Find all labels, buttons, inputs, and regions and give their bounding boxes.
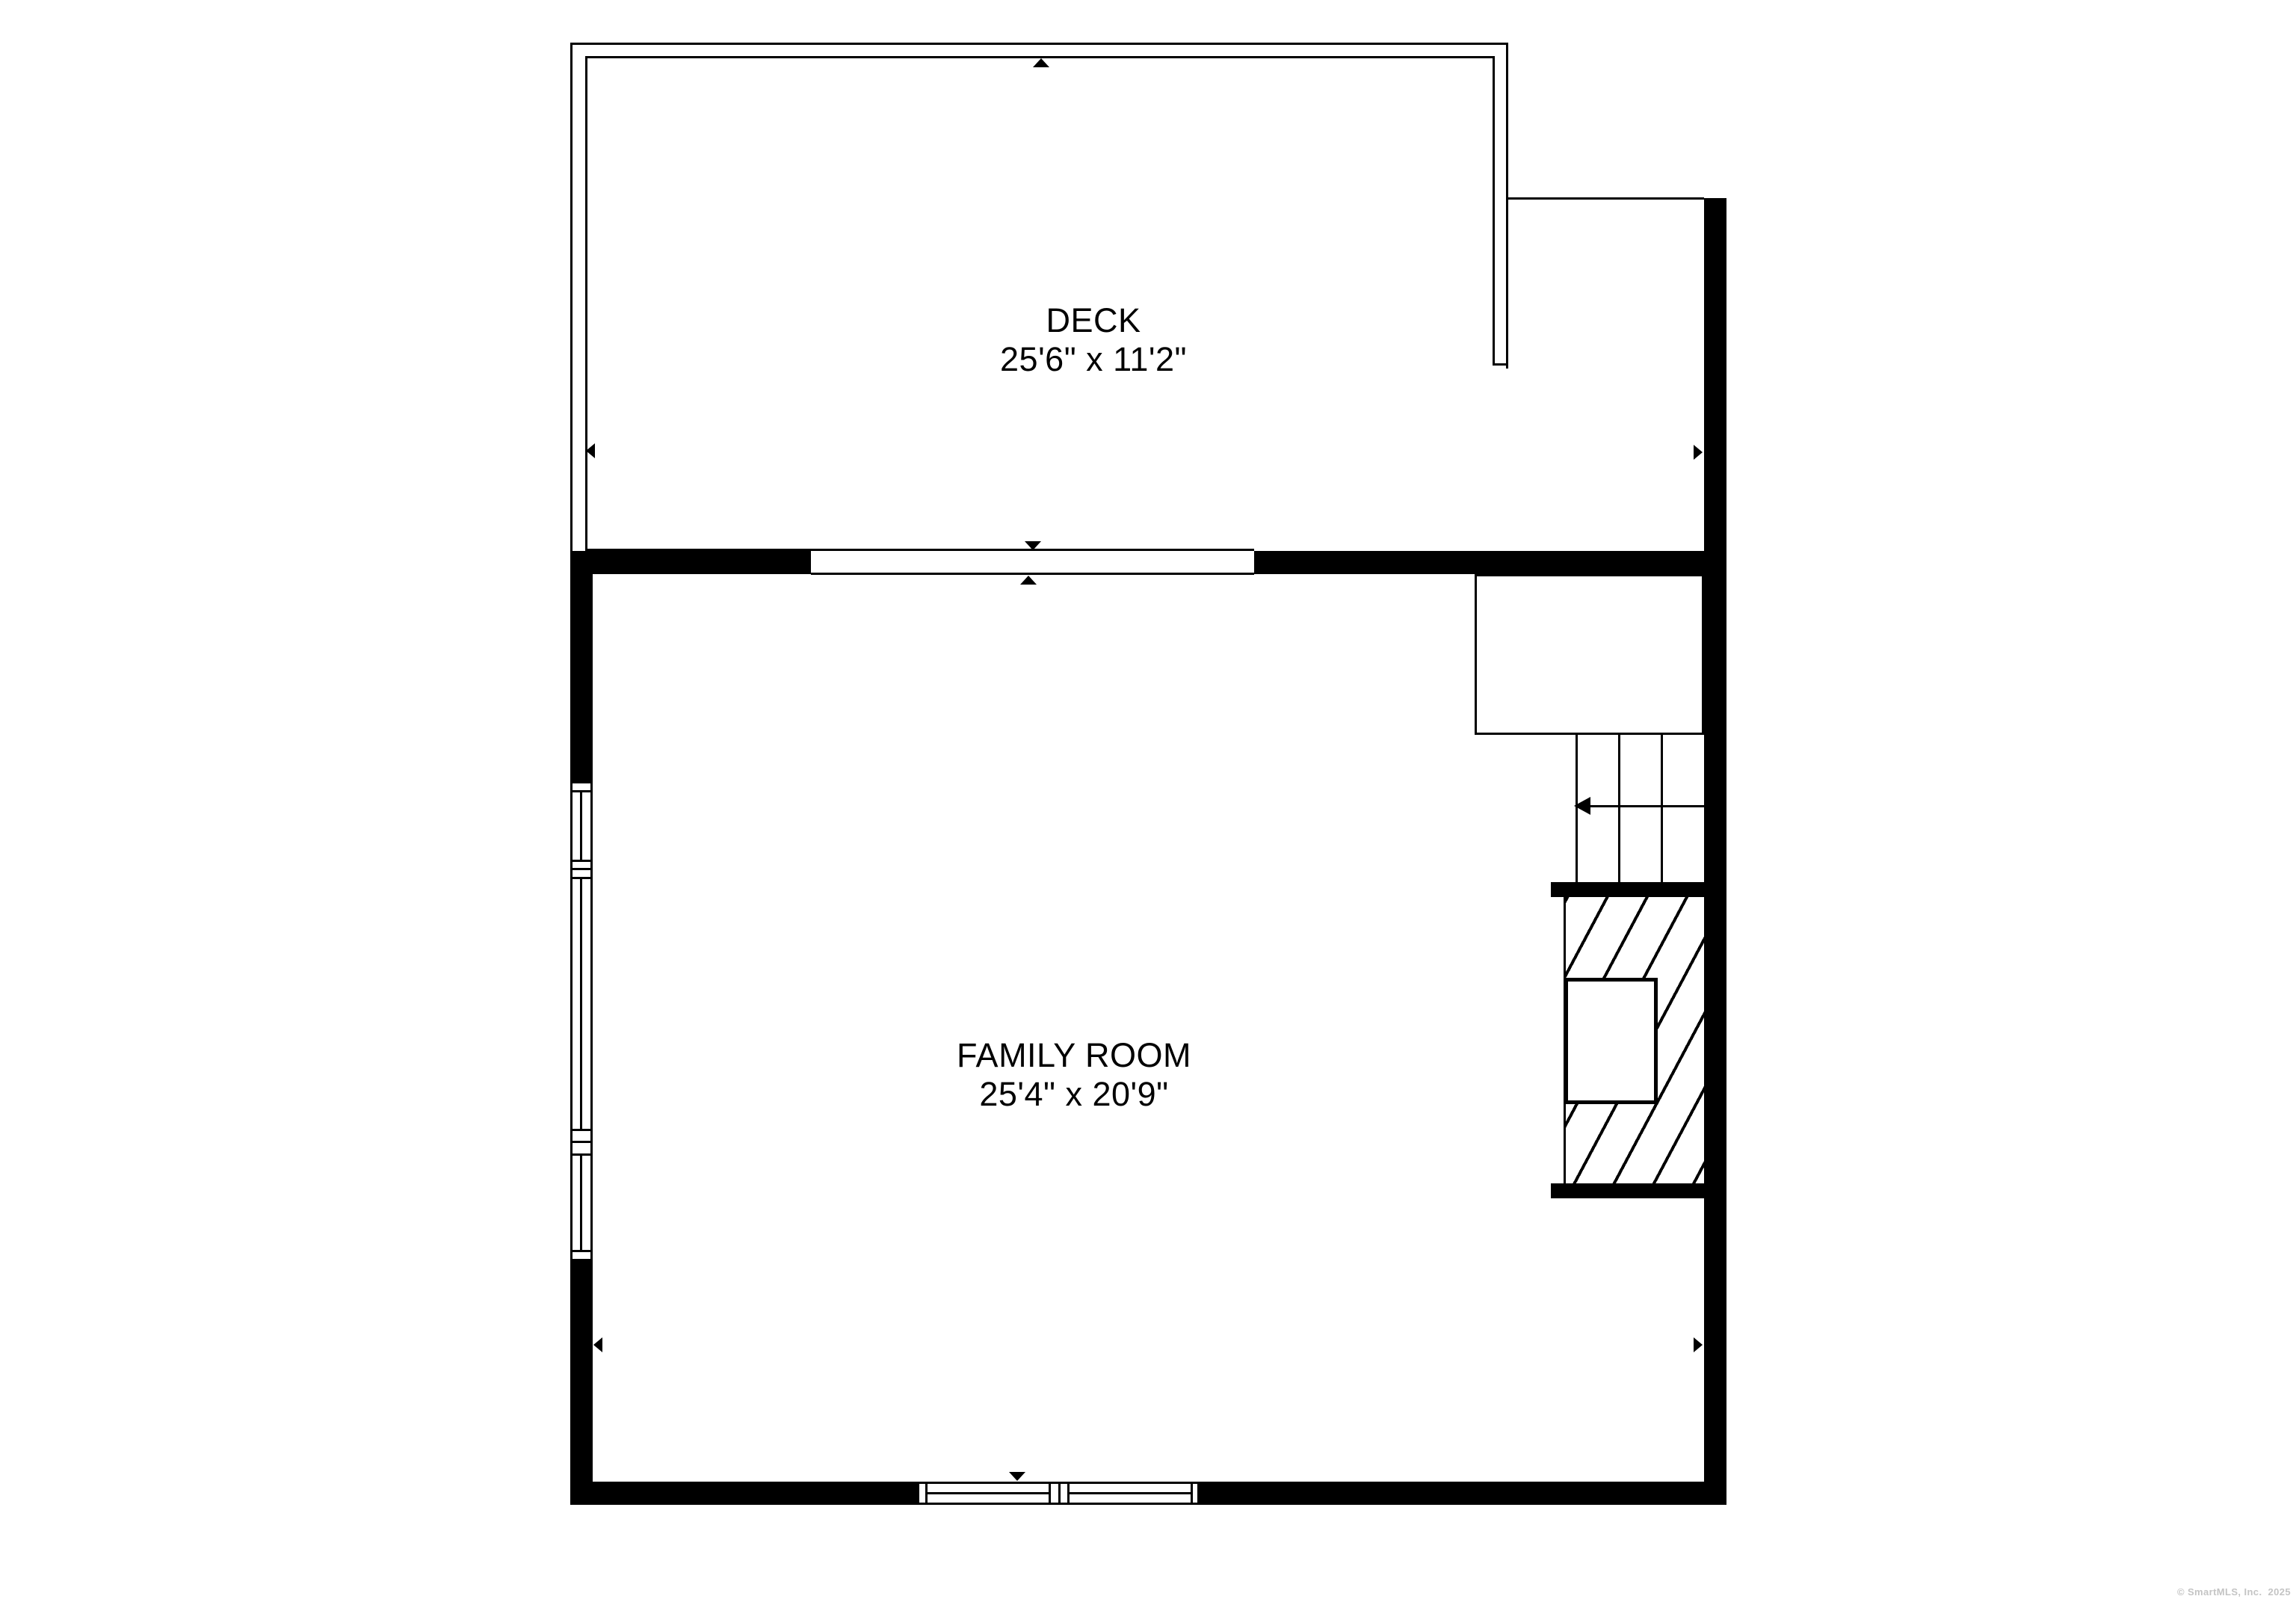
wall-top-left-segment xyxy=(570,551,811,574)
sliding-door-threshold xyxy=(811,573,1254,575)
wall-left-upper xyxy=(570,551,593,781)
window-center-line xyxy=(580,1156,582,1250)
window-mullion xyxy=(570,860,593,862)
deck-railing-outer-right xyxy=(1506,43,1508,369)
window-mullion xyxy=(1058,1482,1061,1505)
window-mullion xyxy=(1049,1482,1051,1505)
deck-railing-inner-right xyxy=(1493,56,1495,363)
floor-plan: DECK 25'6" x 11'2" FAMILY ROOM 25'4" x 2… xyxy=(0,0,2296,1602)
triangle-up-icon xyxy=(1033,58,1049,67)
fireplace-top-bar xyxy=(1551,882,1704,897)
window-mullion xyxy=(570,868,593,870)
window-mullion xyxy=(1191,1482,1193,1505)
wall-right xyxy=(1704,198,1726,1505)
stair-tread-line xyxy=(1618,735,1620,882)
deck-railing-right-cap xyxy=(1493,363,1508,366)
deck-railing-outer-top xyxy=(570,43,1508,45)
triangle-right-icon xyxy=(1694,445,1703,460)
window-mullion xyxy=(570,1129,593,1131)
deck-railing-inner-left xyxy=(585,56,587,549)
wall-left-lower xyxy=(570,1261,593,1482)
room-name: DECK xyxy=(869,301,1318,340)
triangle-up-icon xyxy=(1020,576,1037,585)
window-center-line xyxy=(580,792,582,860)
room-dimensions: 25'6" x 11'2" xyxy=(869,340,1318,379)
triangle-down-icon xyxy=(1025,541,1041,550)
room-label-family-room: FAMILY ROOM 25'4" x 20'9" xyxy=(850,1036,1298,1114)
stair-tread-line xyxy=(1661,735,1663,882)
room-label-deck: DECK 25'6" x 11'2" xyxy=(869,301,1318,379)
deck-railing-outer-left xyxy=(570,43,573,551)
window-center-line xyxy=(580,879,582,1129)
wall-top-right-segment xyxy=(1254,551,1726,574)
upper-right-section-top-edge xyxy=(1506,197,1704,200)
room-name: FAMILY ROOM xyxy=(850,1036,1298,1075)
triangle-left-icon xyxy=(593,1337,602,1352)
watermark: © SmartMLS, Inc. 2025 xyxy=(2177,1586,2291,1598)
triangle-left-icon xyxy=(586,443,595,458)
triangle-down-icon xyxy=(1009,1472,1025,1481)
window-mullion xyxy=(570,1141,593,1143)
window-center-line xyxy=(928,1492,1049,1494)
room-dimensions: 25'4" x 20'9" xyxy=(850,1075,1298,1114)
stair-direction-line xyxy=(1589,805,1704,807)
arrow-left-icon xyxy=(1574,797,1590,815)
triangle-right-icon xyxy=(1694,1337,1703,1352)
firebox xyxy=(1564,978,1658,1104)
stair-landing xyxy=(1475,574,1704,735)
window-mullion xyxy=(570,1250,593,1252)
window-center-line xyxy=(1070,1492,1191,1494)
fireplace-bottom-bar xyxy=(1551,1183,1704,1198)
